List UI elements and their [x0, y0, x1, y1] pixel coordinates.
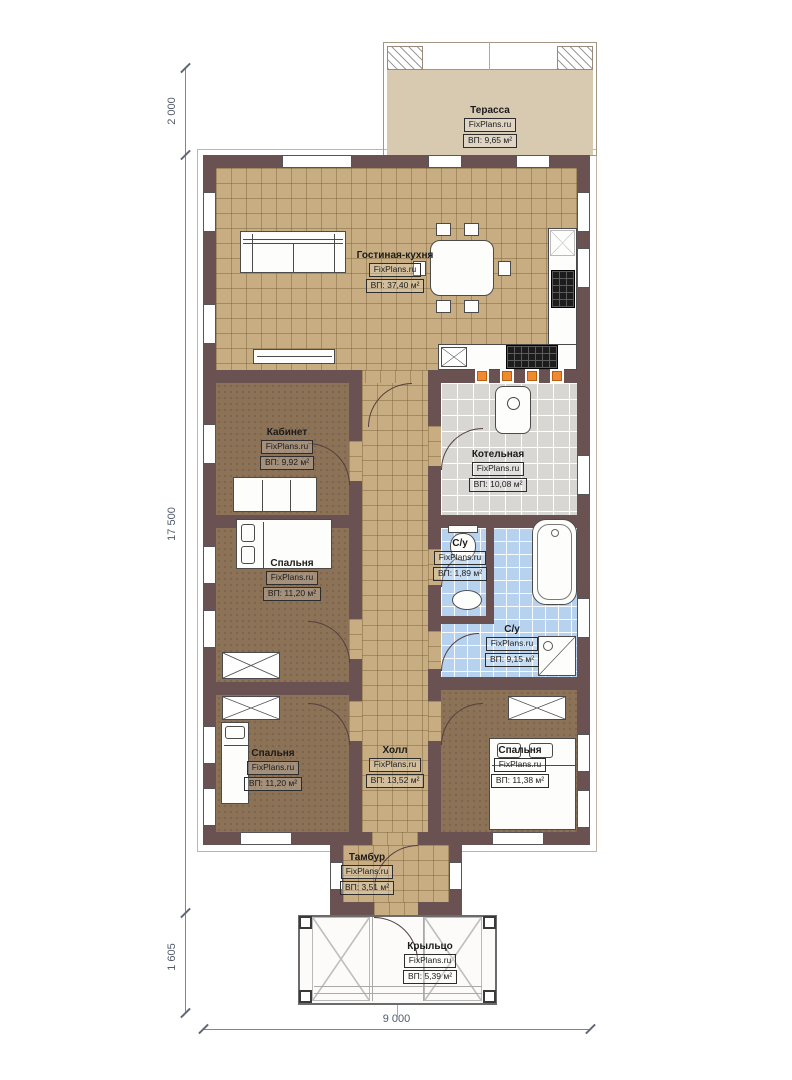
boiler-unit [495, 386, 531, 434]
sofa-back-line [243, 239, 343, 240]
room-area: ВП: 11,20 м² [263, 587, 321, 601]
room-label-bedroom3: Спальня FixPlans.ru ВП: 11,38 м² [475, 745, 565, 788]
room-name: Кабинет [267, 427, 307, 438]
wall-bath-bedroom3 [428, 677, 577, 690]
brand-badge: FixPlans.ru [261, 440, 314, 454]
wall-living-office [216, 370, 362, 383]
window [449, 862, 462, 890]
dimension-label-house-length: 17 500 [166, 489, 178, 559]
room-name: Холл [382, 745, 407, 756]
brand-badge: FixPlans.ru [266, 571, 319, 585]
office-desk [233, 477, 317, 512]
room-label-office: Кабинет FixPlans.ru ВП: 9,92 м² [242, 427, 332, 470]
window [492, 832, 544, 845]
brand-badge: FixPlans.ru [464, 118, 517, 132]
brand-badge: FixPlans.ru [434, 551, 487, 565]
brand-badge: FixPlans.ru [404, 954, 457, 968]
wardrobe [222, 652, 280, 679]
terrace-roof-hatch-left [387, 46, 423, 70]
room-label-wc: С/у FixPlans.ru ВП: 1,89 м² [429, 538, 491, 581]
chair [498, 261, 511, 276]
porch-step-2 [314, 993, 482, 994]
window [577, 734, 590, 772]
opening-boiler [428, 426, 441, 466]
room-label-bedroom1: Спальня FixPlans.ru ВП: 11,20 м² [247, 558, 337, 601]
window [577, 790, 590, 828]
room-area: ВП: 1,89 м² [433, 567, 487, 581]
stove-burners [506, 345, 558, 369]
room-label-bath: С/у FixPlans.ru ВП: 9,15 м² [470, 624, 554, 667]
room-area: ВП: 9,15 м² [485, 653, 539, 667]
toilet-cistern [448, 525, 478, 533]
window [203, 726, 216, 764]
opening-bedroom1 [349, 619, 362, 659]
room-area: ВП: 37,40 м² [366, 279, 425, 293]
room-name: Котельная [472, 449, 524, 460]
room-name: Тамбур [349, 852, 385, 863]
desk-divider [290, 480, 291, 511]
brand-badge: FixPlans.ru [369, 758, 422, 772]
porch-roof-diagonals-left [312, 917, 370, 1001]
boiler-gauge [507, 397, 520, 410]
sofa-cushion-divider [293, 244, 294, 272]
pillow [241, 524, 255, 542]
fridge [550, 230, 575, 256]
coffee-table [253, 349, 335, 364]
pillow [225, 726, 245, 739]
window [203, 304, 216, 344]
horizontal-dimension-line [203, 1029, 590, 1030]
window [516, 155, 550, 168]
window [577, 192, 590, 232]
terrace-centerline [489, 42, 490, 70]
room-label-bedroom2: Спальня FixPlans.ru ВП: 11,20 м² [228, 748, 318, 791]
porch-divider-left [372, 917, 373, 1001]
room-name: Спальня [498, 745, 541, 756]
window [203, 546, 216, 584]
chair [436, 223, 451, 236]
porch-post-bl [299, 990, 312, 1003]
sofa-armrest [252, 234, 253, 272]
room-area: ВП: 11,20 м² [244, 777, 302, 791]
bathtub [532, 519, 577, 605]
opening-bath [428, 631, 441, 669]
window [577, 598, 590, 638]
heater-indicator [527, 371, 537, 381]
chair [464, 300, 479, 313]
room-area: ВП: 3,51 м² [340, 881, 394, 895]
room-name: С/у [504, 624, 520, 635]
brand-badge: FixPlans.ru [369, 263, 422, 277]
brand-badge: FixPlans.ru [472, 462, 525, 476]
opening-bedroom2 [349, 701, 362, 741]
coffee-table-line [257, 356, 332, 357]
sofa [240, 231, 346, 273]
blanket-line [224, 745, 248, 746]
room-area: ВП: 9,92 м² [260, 456, 314, 470]
room-name: Спальня [251, 748, 294, 759]
porch-post-br [483, 990, 496, 1003]
room-name: Терасса [470, 105, 510, 116]
room-label-hall: Холл FixPlans.ru ВП: 13,52 м² [362, 745, 428, 788]
wc-partition-horizontal [441, 616, 494, 624]
window [203, 192, 216, 232]
bathtub-drain [551, 529, 559, 537]
brand-badge: FixPlans.ru [341, 865, 394, 879]
opening-office [349, 441, 362, 481]
room-name: Крыльцо [407, 941, 453, 952]
window [577, 248, 590, 288]
porch-post-tl [299, 916, 312, 929]
room-name: Гостиная-кухня [357, 250, 434, 261]
floor-plan-canvas: Терасса FixPlans.ru ВП: 9,65 м² Гостиная… [0, 0, 792, 1080]
opening-bedroom3 [428, 701, 441, 741]
heater-indicator [502, 371, 512, 381]
opening-porch [374, 902, 418, 915]
wardrobe [508, 696, 566, 720]
chair [436, 300, 451, 313]
chair [464, 223, 479, 236]
room-area: ВП: 9,65 м² [463, 134, 517, 148]
wc-sink [452, 590, 482, 610]
terrace-roof-hatch-right [557, 46, 593, 70]
room-label-terrace: Терасса FixPlans.ru ВП: 9,65 м² [446, 105, 534, 148]
kitchen-sink [441, 347, 467, 367]
opening-tambour [372, 832, 418, 845]
wall-bedroom1-bedroom2 [216, 682, 362, 695]
wardrobe [222, 696, 280, 720]
room-name: Спальня [270, 558, 313, 569]
room-name: С/у [452, 538, 468, 549]
opening-living-hall [365, 370, 415, 383]
window [203, 610, 216, 648]
vertical-dimension-line [185, 68, 186, 1013]
hall-left-wall [349, 370, 362, 832]
window [282, 155, 352, 168]
window [577, 455, 590, 495]
sofa-armrest [334, 234, 335, 272]
window [203, 788, 216, 826]
dimension-label-porch-depth: 1 605 [166, 922, 178, 992]
kitchen-appliance [551, 270, 575, 308]
window [240, 832, 292, 845]
terrace-door [428, 155, 462, 168]
desk-divider [262, 480, 263, 511]
brand-badge: FixPlans.ru [247, 761, 300, 775]
heater-indicator [552, 371, 562, 381]
brand-badge: FixPlans.ru [494, 758, 547, 772]
dimension-label-house-width: 9 000 [203, 1013, 590, 1025]
heater-indicator [477, 371, 487, 381]
room-area: ВП: 10,08 м² [469, 478, 528, 492]
room-label-living-kitchen: Гостиная-кухня FixPlans.ru ВП: 37,40 м² [347, 250, 443, 293]
room-label-tambour: Тамбур FixPlans.ru ВП: 3,51 м² [323, 852, 411, 895]
porch-step-1 [314, 986, 482, 987]
room-area: ВП: 13,52 м² [366, 774, 425, 788]
porch-post-tr [483, 916, 496, 929]
window [203, 424, 216, 464]
brand-badge: FixPlans.ru [486, 637, 539, 651]
room-label-porch: Крыльцо FixPlans.ru ВП: 5,39 м² [386, 941, 474, 984]
room-label-boiler: Котельная FixPlans.ru ВП: 10,08 м² [453, 449, 543, 492]
room-area: ВП: 5,39 м² [403, 970, 457, 984]
dimension-label-terrace-depth: 2 000 [166, 76, 178, 146]
room-area: ВП: 11,38 м² [491, 774, 549, 788]
